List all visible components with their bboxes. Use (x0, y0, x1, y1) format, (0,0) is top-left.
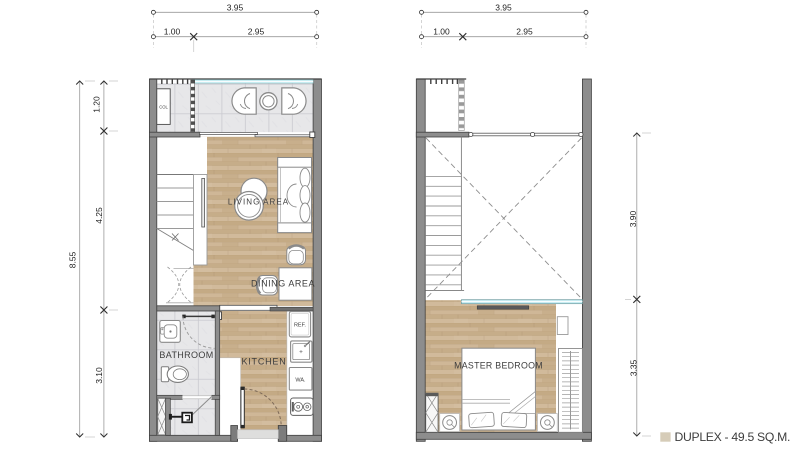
svg-text:1.00: 1.00 (164, 26, 181, 36)
svg-text:2.95: 2.95 (516, 26, 533, 36)
svg-text:3.95: 3.95 (227, 3, 244, 13)
svg-text:1.20: 1.20 (92, 96, 102, 113)
svg-text:COL: COL (159, 105, 168, 110)
svg-text:1.00: 1.00 (433, 26, 450, 36)
svg-text:4.25: 4.25 (94, 207, 104, 224)
svg-text:WA.: WA. (295, 377, 306, 383)
svg-text:KITCHEN: KITCHEN (241, 357, 286, 367)
svg-text:REF.: REF. (294, 322, 306, 328)
svg-text:2.95: 2.95 (248, 26, 265, 36)
svg-text:BATHROOM: BATHROOM (159, 350, 213, 360)
svg-text:3.95: 3.95 (495, 3, 512, 13)
svg-text:DUPLEX - 49.5 SQ.M.: DUPLEX - 49.5 SQ.M. (675, 430, 791, 444)
svg-text:3.35: 3.35 (629, 359, 639, 376)
svg-text:3.90: 3.90 (628, 210, 638, 227)
svg-text:LIVING AREA: LIVING AREA (228, 197, 289, 206)
svg-text:DINING AREA: DINING AREA (251, 279, 315, 289)
svg-text:8.55: 8.55 (68, 251, 78, 268)
svg-text:MASTER BEDROOM: MASTER BEDROOM (454, 360, 543, 370)
svg-text:3.10: 3.10 (94, 367, 104, 384)
